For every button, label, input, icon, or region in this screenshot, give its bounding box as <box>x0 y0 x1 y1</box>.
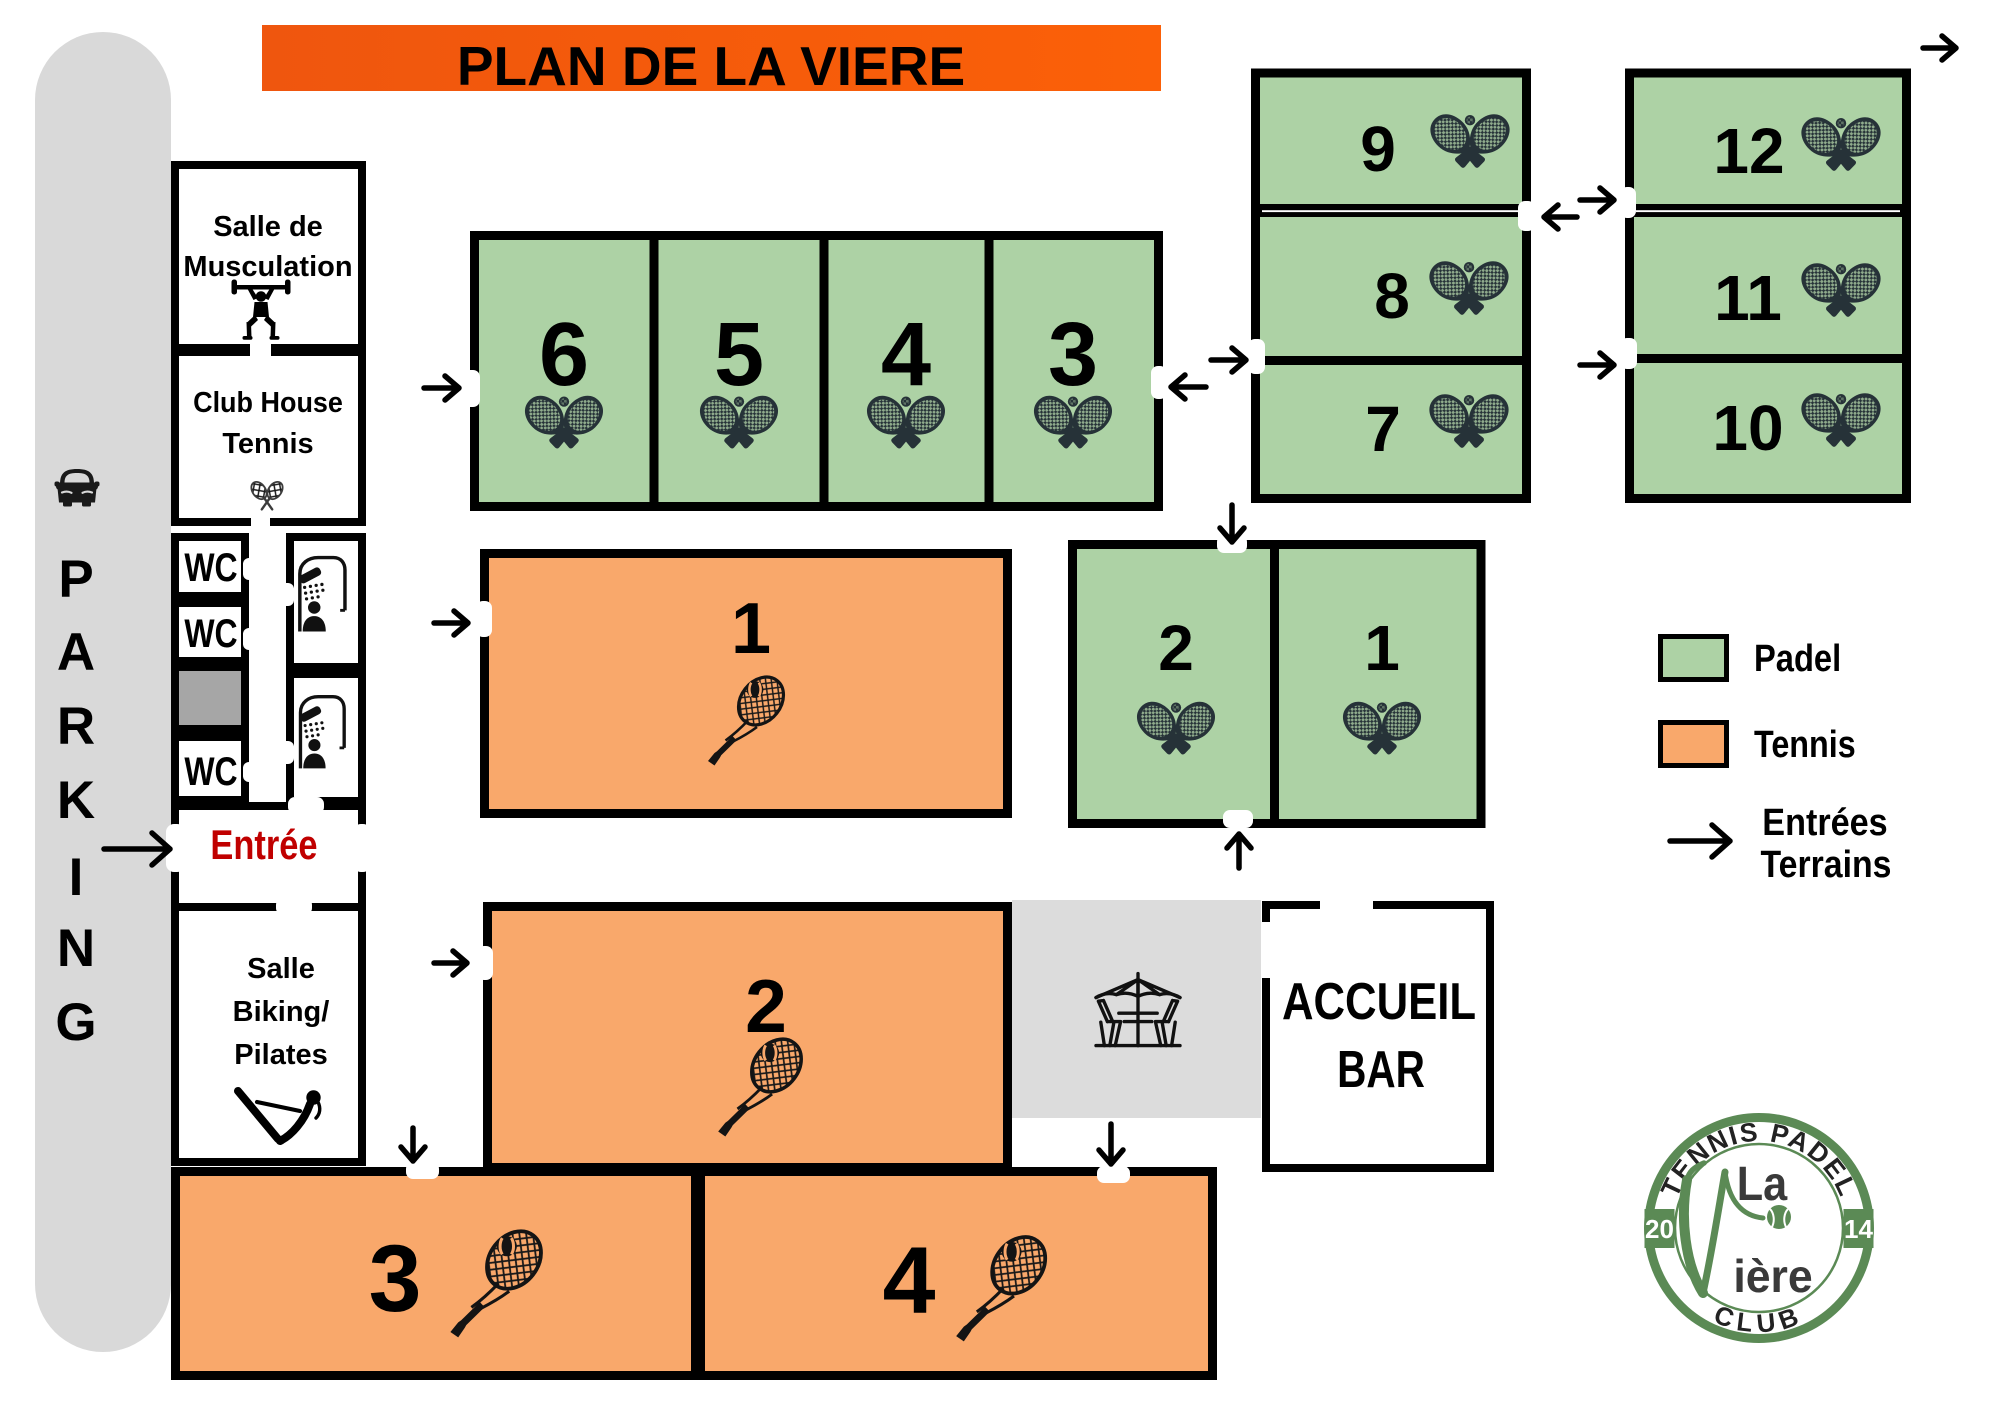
svg-text:Padel: Padel <box>1754 637 1841 680</box>
svg-text:Terrains: Terrains <box>1761 842 1892 885</box>
svg-text:Biking/: Biking/ <box>233 996 330 1028</box>
svg-text:Entrées: Entrées <box>1762 800 1887 843</box>
svg-text:R: R <box>57 697 95 756</box>
svg-text:Tennis: Tennis <box>1754 724 1856 766</box>
svg-text:La: La <box>1737 1157 1788 1211</box>
svg-text:A: A <box>57 623 95 682</box>
svg-text:14: 14 <box>1844 1214 1873 1244</box>
svg-text:WC: WC <box>184 749 237 794</box>
svg-text:K: K <box>57 771 95 830</box>
svg-text:Tennis: Tennis <box>222 428 313 460</box>
svg-text:Entrée: Entrée <box>210 822 317 869</box>
svg-text:4: 4 <box>881 305 931 405</box>
svg-text:Salle de: Salle de <box>213 211 323 243</box>
svg-text:ACCUEIL: ACCUEIL <box>1282 974 1476 1031</box>
svg-text:WC: WC <box>184 545 237 590</box>
svg-text:G: G <box>55 993 96 1052</box>
svg-text:1: 1 <box>1364 612 1400 684</box>
svg-text:2: 2 <box>1158 612 1194 684</box>
svg-text:20: 20 <box>1645 1214 1674 1244</box>
svg-text:4: 4 <box>883 1228 936 1334</box>
svg-text:11: 11 <box>1714 262 1782 334</box>
svg-text:N: N <box>57 919 95 978</box>
svg-text:12: 12 <box>1713 115 1784 187</box>
svg-text:BAR: BAR <box>1337 1040 1425 1098</box>
svg-text:8: 8 <box>1374 260 1410 332</box>
svg-text:WC: WC <box>184 611 237 656</box>
svg-text:I: I <box>69 848 84 907</box>
svg-text:3: 3 <box>1048 305 1098 405</box>
svg-text:PLAN DE LA VIERE: PLAN DE LA VIERE <box>457 35 965 97</box>
svg-text:1: 1 <box>731 589 771 669</box>
svg-text:Musculation: Musculation <box>183 251 352 283</box>
svg-text:ière: ière <box>1733 1250 1812 1302</box>
svg-text:10: 10 <box>1712 392 1783 464</box>
svg-text:6: 6 <box>539 305 589 405</box>
svg-text:2: 2 <box>745 964 787 1048</box>
svg-text:5: 5 <box>714 305 764 405</box>
svg-text:Club House: Club House <box>193 386 343 418</box>
svg-text:P: P <box>58 550 93 609</box>
svg-text:9: 9 <box>1360 113 1396 185</box>
svg-text:Pilates: Pilates <box>234 1039 328 1071</box>
svg-text:7: 7 <box>1365 393 1401 465</box>
svg-text:3: 3 <box>369 1226 422 1332</box>
svg-text:Salle: Salle <box>247 953 315 985</box>
